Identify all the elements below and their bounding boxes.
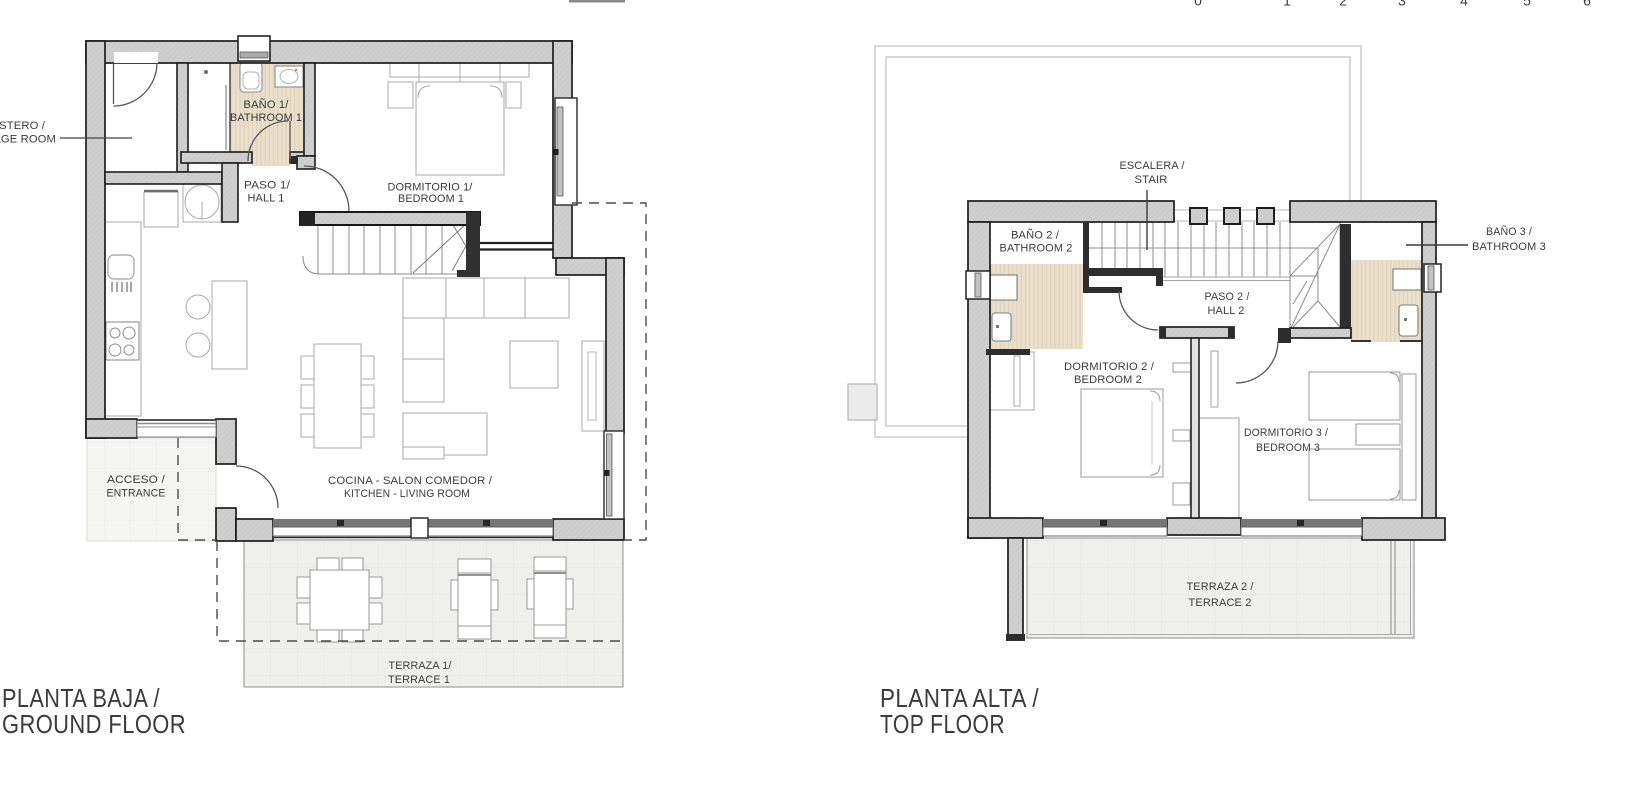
svg-text:ESCALERA /: ESCALERA / [1120,160,1186,172]
svg-text:PASO 1/: PASO 1/ [244,180,291,192]
svg-text:STAIR: STAIR [1135,174,1168,186]
svg-text:STORAGE ROOM: STORAGE ROOM [0,134,56,146]
svg-text:4: 4 [1460,0,1468,9]
svg-text:ENTRANCE: ENTRANCE [107,488,166,500]
svg-text:BATHROOM 1: BATHROOM 1 [230,112,302,124]
svg-text:TRASTERO /: TRASTERO / [0,120,46,132]
svg-text:KITCHEN - LIVING ROOM: KITCHEN - LIVING ROOM [344,488,470,500]
svg-text:COCINA - SALON COMEDOR /: COCINA - SALON COMEDOR / [328,475,493,487]
svg-text:BEDROOM 1: BEDROOM 1 [398,193,464,205]
svg-text:BAÑO 3 /: BAÑO 3 / [1486,225,1533,238]
svg-text:PASO 2 /: PASO 2 / [1205,291,1251,303]
svg-text:BEDROOM 2: BEDROOM 2 [1074,374,1142,386]
svg-text:1: 1 [1283,0,1291,9]
svg-text:BEDROOM 3: BEDROOM 3 [1256,442,1320,454]
svg-text:BAÑO 1/: BAÑO 1/ [244,98,290,111]
svg-text:TERRAZA 1/: TERRAZA 1/ [389,660,453,672]
svg-text:TERRACE 1: TERRACE 1 [388,674,450,686]
svg-text:BATHROOM 3: BATHROOM 3 [1472,241,1546,253]
svg-text:TERRACE 2: TERRACE 2 [1189,597,1252,609]
svg-text:TOP FLOOR: TOP FLOOR [880,709,1005,739]
svg-text:GROUND FLOOR: GROUND FLOOR [2,709,186,739]
svg-text:BAÑO 2 /: BAÑO 2 / [1011,229,1060,242]
svg-text:HALL 1: HALL 1 [248,193,285,205]
svg-text:0: 0 [1194,0,1202,9]
svg-text:2: 2 [1339,0,1347,9]
svg-text:HALL 2: HALL 2 [1208,305,1245,317]
svg-text:DORMITORIO 1/: DORMITORIO 1/ [388,182,474,194]
svg-text:DORMITORIO 2 /: DORMITORIO 2 / [1064,361,1155,373]
svg-text:5: 5 [1523,0,1531,9]
svg-text:ACCESO /: ACCESO / [107,474,166,486]
svg-text:TERRAZA 2 /: TERRAZA 2 / [1187,581,1255,593]
svg-text:BATHROOM 2: BATHROOM 2 [1000,243,1073,255]
svg-text:DORMITORIO 3 /: DORMITORIO 3 / [1244,427,1329,439]
svg-text:3: 3 [1398,0,1406,9]
svg-text:6: 6 [1583,0,1591,9]
